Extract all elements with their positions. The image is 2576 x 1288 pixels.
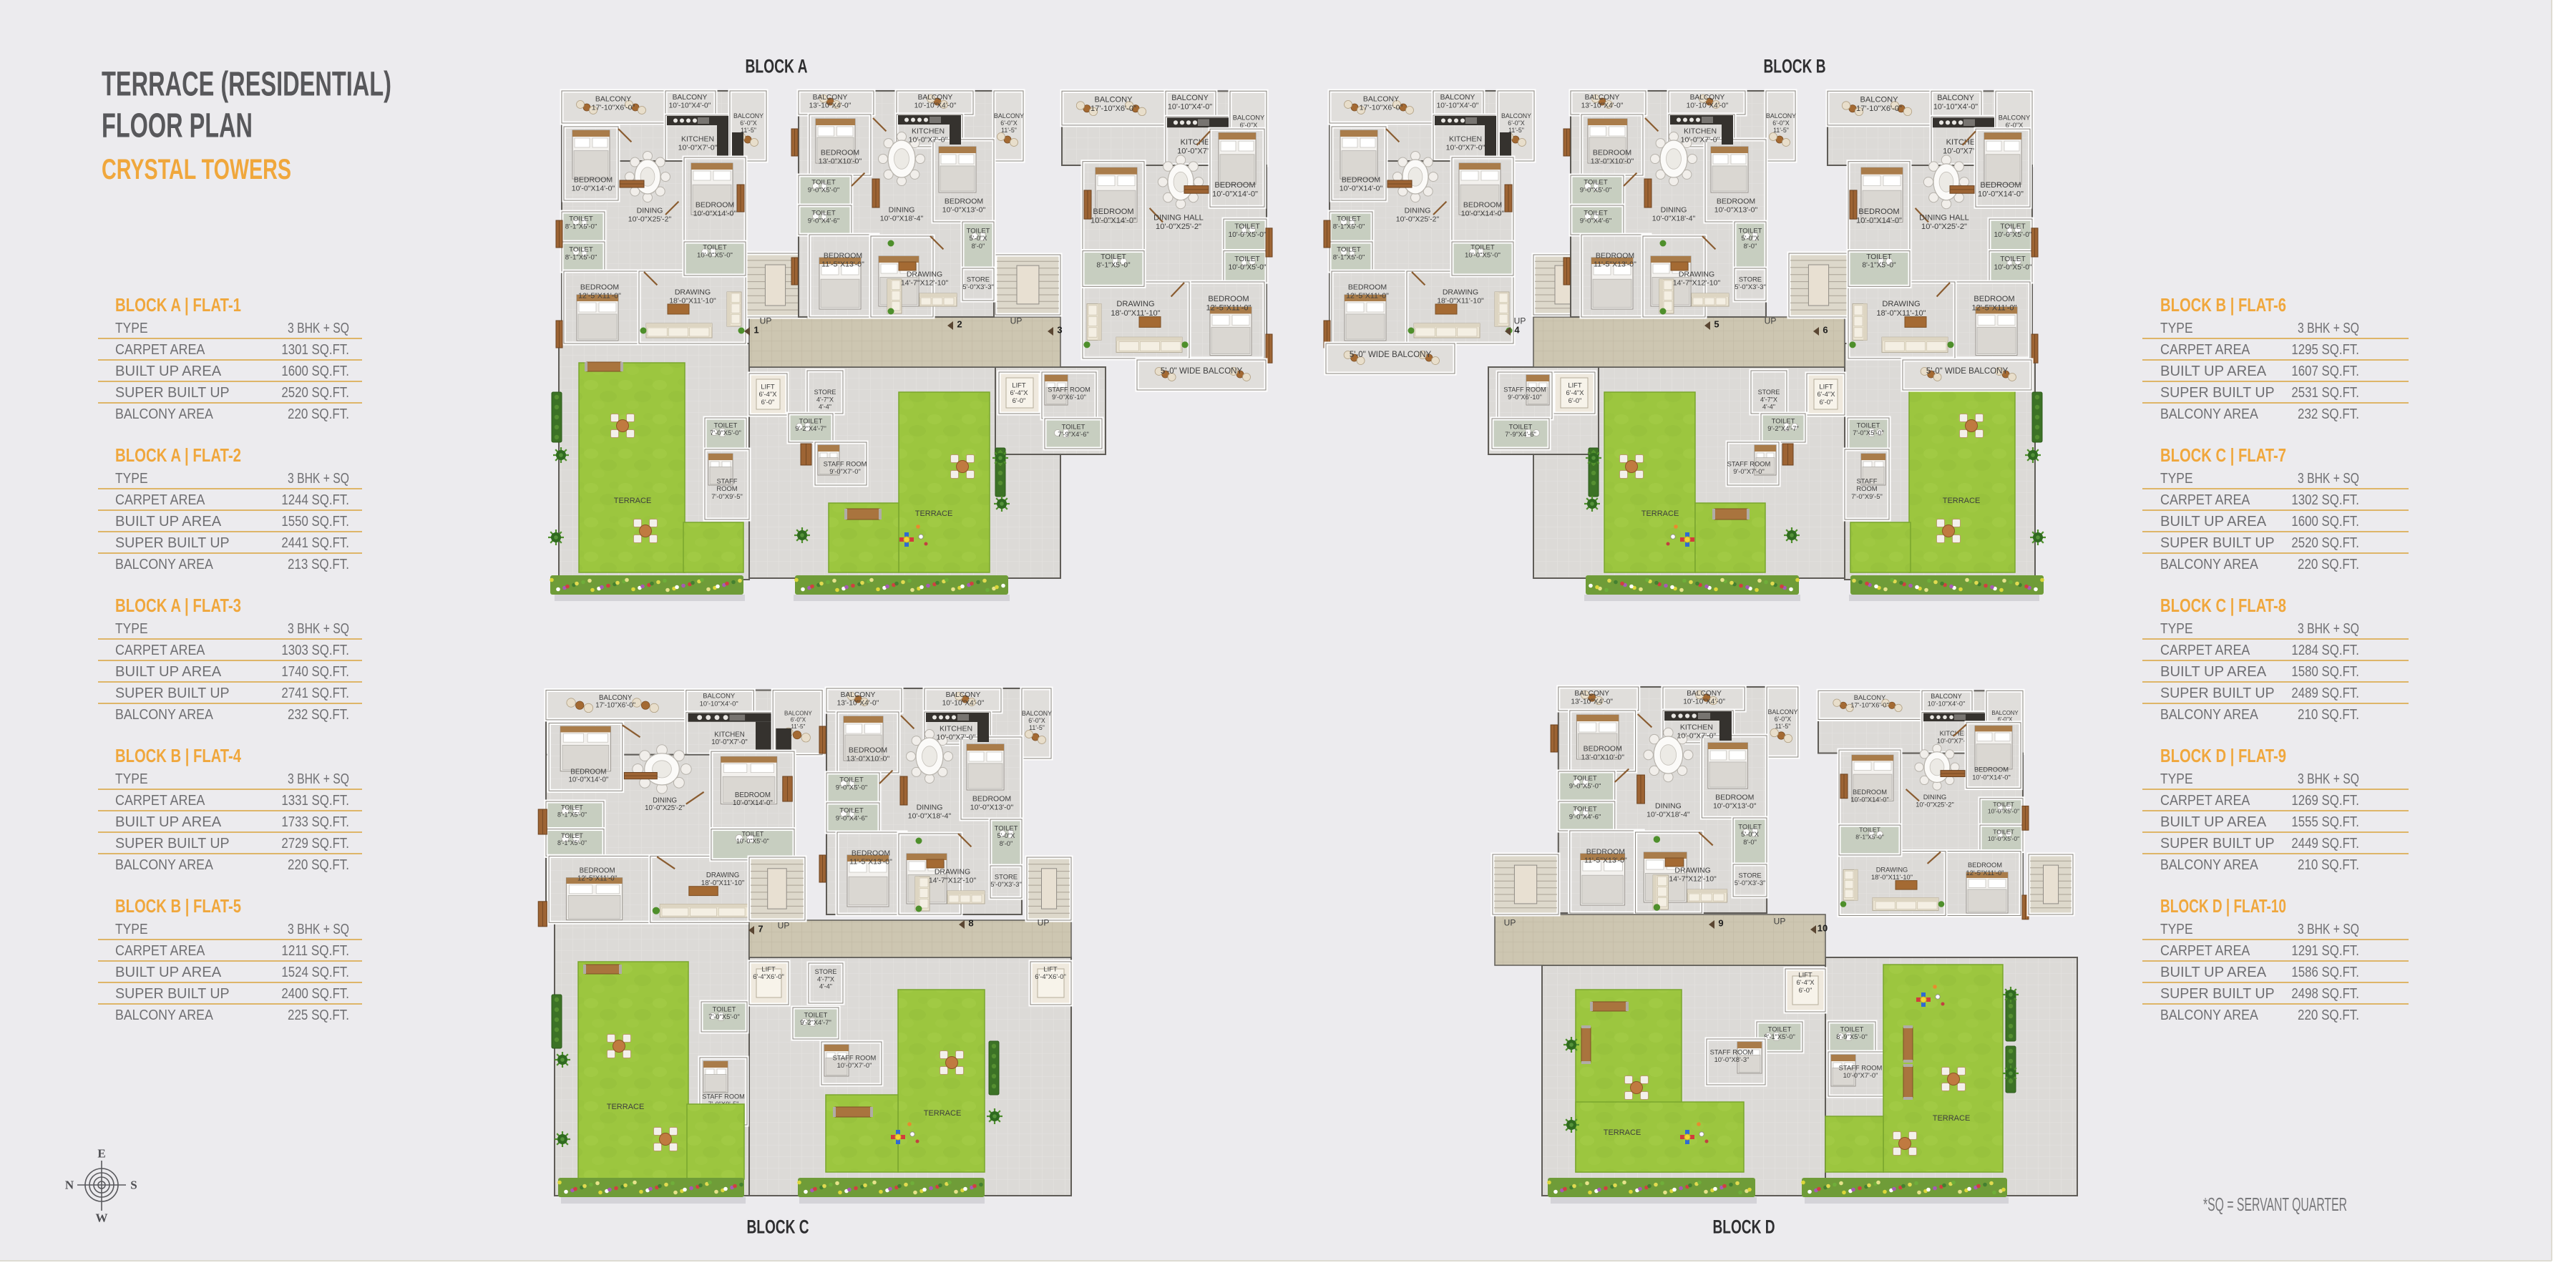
svg-text:10'-0"X14'-0": 10'-0"X14'-0" (693, 209, 737, 218)
svg-text:2441 SQ.FT.: 2441 SQ.FT. (281, 535, 349, 551)
svg-text:BEDROOM: BEDROOM (945, 197, 983, 205)
svg-text:TOILET: TOILET (561, 832, 583, 839)
svg-text:DRAWING: DRAWING (935, 867, 970, 876)
svg-text:2741 SQ.FT.: 2741 SQ.FT. (281, 686, 349, 701)
svg-text:2520 SQ.FT.: 2520 SQ.FT. (2291, 535, 2359, 551)
svg-text:BUILT UP AREA: BUILT UP AREA (2160, 664, 2267, 680)
svg-text:12'-5"X11'-0": 12'-5"X11'-0" (1206, 303, 1251, 312)
svg-text:BLOCK B | FLAT-5: BLOCK B | FLAT-5 (115, 895, 241, 917)
svg-text:SUPER BUILT UP: SUPER BUILT UP (115, 686, 230, 701)
svg-text:14'-7"X12'-10": 14'-7"X12'-10" (1669, 874, 1717, 883)
svg-text:5'-0" WIDE BALCONY: 5'-0" WIDE BALCONY (1161, 367, 1243, 376)
svg-text:1740 SQ.FT.: 1740 SQ.FT. (281, 664, 349, 680)
svg-text:18'-0"X11'-10": 18'-0"X11'-10" (669, 296, 716, 305)
svg-text:DRAWING: DRAWING (1443, 288, 1478, 296)
svg-text:232 SQ.FT.: 232 SQ.FT. (288, 707, 349, 723)
svg-text:BEDROOM: BEDROOM (1214, 181, 1255, 190)
svg-text:TOILET: TOILET (839, 776, 864, 784)
svg-text:BLOCK B | FLAT-4: BLOCK B | FLAT-4 (115, 745, 241, 766)
svg-text:8'-1"X5'-0": 8'-1"X5'-0" (565, 254, 597, 262)
svg-text:TOILET: TOILET (811, 179, 836, 187)
svg-text:10'-0"X18'-4": 10'-0"X18'-4" (880, 214, 924, 223)
svg-text:14'-7"X12'-10": 14'-7"X12'-10" (901, 278, 949, 287)
svg-text:213 SQ.FT.: 213 SQ.FT. (288, 557, 349, 572)
svg-text:6'-0"X: 6'-0"X (791, 717, 806, 723)
svg-text:BALCONY: BALCONY (1094, 96, 1133, 104)
svg-text:BEDROOM: BEDROOM (1715, 793, 1754, 801)
svg-text:BALCONY: BALCONY (1233, 114, 1264, 122)
svg-text:3 BHK + SQ: 3 BHK + SQ (2298, 922, 2359, 937)
svg-text:BALCONY AREA: BALCONY AREA (115, 1008, 213, 1023)
svg-text:6'-4"X: 6'-4"X (1818, 390, 1836, 398)
svg-text:12'-5"X11'-0": 12'-5"X11'-0" (1971, 303, 2016, 312)
svg-text:TOILET: TOILET (569, 246, 593, 254)
svg-text:TERRACE: TERRACE (924, 1109, 962, 1118)
svg-text:BEDROOM: BEDROOM (570, 769, 606, 776)
svg-text:BALCONY AREA: BALCONY AREA (2160, 707, 2258, 723)
svg-text:TOILET: TOILET (967, 227, 990, 235)
svg-text:11'-5"X13'-0": 11'-5"X13'-0" (1584, 856, 1627, 864)
svg-text:BALCONY: BALCONY (595, 94, 631, 103)
svg-text:1586 SQ.FT.: 1586 SQ.FT. (2291, 965, 2359, 980)
svg-text:ROOM: ROOM (716, 484, 737, 492)
svg-text:TOILET: TOILET (1768, 1025, 1792, 1033)
svg-text:8'-1"X5'-0": 8'-1"X5'-0" (557, 839, 587, 847)
svg-text:BEDROOM: BEDROOM (1093, 208, 1133, 216)
svg-text:TYPE: TYPE (115, 771, 148, 787)
svg-text:BLOCK D: BLOCK D (1713, 1216, 1775, 1238)
svg-text:17'-10"X6'-0": 17'-10"X6'-0" (1856, 104, 1902, 113)
svg-text:10'-10"X4'-0": 10'-10"X4'-0" (1687, 102, 1729, 110)
svg-text:6'-4"X: 6'-4"X (759, 390, 778, 398)
svg-text:10'-0"X7'-0": 10'-0"X7'-0" (1681, 135, 1720, 144)
svg-text:BALCONY: BALCONY (784, 711, 812, 717)
svg-text:17'-10"X6'-0": 17'-10"X6'-0" (1850, 702, 1889, 709)
svg-text:TOILET: TOILET (569, 215, 593, 223)
svg-text:KITCHEN: KITCHEN (681, 135, 714, 143)
svg-text:5'-0"X: 5'-0"X (970, 234, 988, 242)
svg-text:E: E (97, 1147, 105, 1161)
svg-text:11'-5": 11'-5" (1029, 724, 1045, 731)
svg-text:BALCONY: BALCONY (994, 112, 1024, 119)
svg-text:STORE: STORE (1739, 872, 1762, 879)
svg-text:CARPET AREA: CARPET AREA (2160, 943, 2250, 959)
svg-text:6'-0"X: 6'-0"X (740, 119, 757, 127)
svg-text:232 SQ.FT.: 232 SQ.FT. (2298, 406, 2359, 422)
svg-text:8'-1"X5'-0": 8'-1"X5'-0" (1096, 261, 1131, 269)
svg-text:TOILET: TOILET (811, 210, 836, 218)
svg-text:BALCONY: BALCONY (1766, 112, 1796, 119)
svg-text:BALCONY: BALCONY (733, 112, 763, 119)
svg-text:TERRACE: TERRACE (1604, 1128, 1641, 1137)
svg-text:TYPE: TYPE (115, 922, 148, 937)
svg-text:10'-0"X14'-0": 10'-0"X14'-0" (1972, 774, 2011, 781)
svg-text:10'-0"X13'-0": 10'-0"X13'-0" (942, 205, 986, 214)
svg-text:6'-4"X6'-0": 6'-4"X6'-0" (1035, 972, 1066, 980)
svg-text:3 BHK + SQ: 3 BHK + SQ (2298, 471, 2359, 487)
svg-text:BEDROOM: BEDROOM (1974, 295, 2014, 303)
svg-text:10'-0"X18'-4": 10'-0"X18'-4" (1646, 810, 1690, 819)
svg-text:BLOCK A | FLAT-2: BLOCK A | FLAT-2 (115, 444, 241, 466)
svg-text:BLOCK A: BLOCK A (746, 56, 808, 77)
svg-text:BUILT UP AREA: BUILT UP AREA (2160, 814, 2267, 830)
svg-text:TOILET: TOILET (839, 807, 864, 815)
svg-text:3 BHK + SQ: 3 BHK + SQ (2298, 321, 2359, 336)
svg-text:BLOCK A | FLAT-1: BLOCK A | FLAT-1 (115, 294, 241, 316)
svg-text:STAFF ROOM: STAFF ROOM (1503, 386, 1546, 393)
svg-text:7'-9"X4'-6": 7'-9"X4'-6" (1505, 430, 1536, 438)
svg-text:TOILET: TOILET (1509, 423, 1533, 431)
svg-text:10'-0"X7'-0": 10'-0"X7'-0" (1677, 731, 1717, 740)
svg-text:1269 SQ.FT.: 1269 SQ.FT. (2291, 793, 2359, 809)
svg-text:TOILET: TOILET (1859, 826, 1880, 834)
svg-text:10'-0"X14'-0": 10'-0"X14'-0" (1340, 184, 1383, 192)
svg-text:18'-0"X11'-10": 18'-0"X11'-10" (1871, 874, 1913, 881)
svg-text:11'-5": 11'-5" (1001, 127, 1017, 134)
svg-text:SUPER BUILT UP: SUPER BUILT UP (2160, 986, 2275, 1002)
svg-text:12'-5"X11'-0": 12'-5"X11'-0" (578, 291, 621, 300)
svg-text:10'-10"X4'-0": 10'-10"X4'-0" (669, 102, 711, 110)
svg-text:10'-0"X14'-0": 10'-0"X14'-0" (1091, 217, 1136, 225)
svg-text:10'-0"X14'-0": 10'-0"X14'-0" (1856, 217, 1902, 225)
svg-text:STAFF ROOM: STAFF ROOM (1048, 386, 1091, 393)
svg-text:BALCONY: BALCONY (1999, 114, 2030, 122)
svg-text:17'-10"X6'-0": 17'-10"X6'-0" (592, 103, 635, 112)
svg-text:14'-7"X12'-10": 14'-7"X12'-10" (929, 876, 977, 884)
svg-text:220 SQ.FT.: 220 SQ.FT. (288, 406, 349, 422)
svg-text:10'-0"X5'-0": 10'-0"X5'-0" (1994, 264, 2031, 272)
svg-text:TERRACE: TERRACE (1641, 509, 1679, 518)
svg-text:BALCONY: BALCONY (1991, 710, 2019, 716)
svg-text:1550 SQ.FT.: 1550 SQ.FT. (281, 514, 349, 530)
svg-text:LIFT: LIFT (761, 383, 775, 391)
svg-text:BALCONY: BALCONY (1931, 693, 1961, 700)
svg-text:CARPET AREA: CARPET AREA (2160, 492, 2250, 508)
svg-text:SUPER BUILT UP: SUPER BUILT UP (2160, 686, 2275, 701)
svg-text:1331 SQ.FT.: 1331 SQ.FT. (281, 793, 349, 809)
svg-text:CARPET AREA: CARPET AREA (115, 943, 205, 959)
svg-text:5'-0"X3'-3": 5'-0"X3'-3" (1735, 283, 1766, 291)
svg-text:6'-4"X: 6'-4"X (1566, 389, 1585, 396)
svg-text:7'-0"X9'-5": 7'-0"X9'-5" (1851, 492, 1883, 500)
svg-text:2520 SQ.FT.: 2520 SQ.FT. (281, 385, 349, 401)
svg-text:8'-0": 8'-0" (972, 242, 985, 250)
svg-text:9'-0"X7'-0": 9'-0"X7'-0" (829, 467, 861, 475)
svg-text:11'-5": 11'-5" (741, 127, 756, 134)
svg-text:8'-0": 8'-0" (1743, 838, 1757, 846)
svg-text:8'-1"X5'-0": 8'-1"X5'-0" (1333, 254, 1365, 262)
svg-text:BALCONY: BALCONY (1022, 710, 1052, 717)
svg-text:9'-0"X5'-0": 9'-0"X5'-0" (1569, 783, 1601, 791)
svg-text:TOILET: TOILET (1062, 423, 1085, 431)
svg-text:TOILET: TOILET (1573, 806, 1597, 814)
svg-text:1284 SQ.FT.: 1284 SQ.FT. (2291, 643, 2359, 658)
svg-text:BLOCK C: BLOCK C (747, 1216, 809, 1238)
svg-text:BLOCK C | FLAT-7: BLOCK C | FLAT-7 (2160, 444, 2286, 466)
svg-text:9'-0"X4'-6": 9'-0"X4'-6" (836, 815, 868, 823)
svg-text:12'-5"X11'-0": 12'-5"X11'-0" (1346, 291, 1389, 300)
svg-text:BALCONY AREA: BALCONY AREA (2160, 557, 2258, 572)
svg-text:UP: UP (1504, 918, 1516, 928)
svg-text:BALCONY AREA: BALCONY AREA (2160, 406, 2258, 422)
svg-text:2729 SQ.FT.: 2729 SQ.FT. (281, 836, 349, 852)
svg-text:10'-0"X14'-0": 10'-0"X14'-0" (1212, 190, 1258, 199)
svg-text:6'-0"X: 6'-0"X (1772, 119, 1790, 127)
svg-text:6: 6 (1823, 324, 1828, 335)
svg-text:UP: UP (1774, 917, 1786, 927)
svg-text:10'-0"X25'-2": 10'-0"X25'-2" (1916, 801, 1954, 809)
svg-text:KITCHEN: KITCHEN (1684, 127, 1717, 135)
svg-text:BALCONY: BALCONY (673, 94, 708, 102)
svg-text:STORE: STORE (967, 275, 990, 283)
svg-text:TOILET: TOILET (1866, 253, 1891, 261)
svg-text:5'-0" WIDE BALCONY: 5'-0" WIDE BALCONY (1350, 351, 1432, 359)
svg-text:CARPET AREA: CARPET AREA (2160, 342, 2250, 358)
svg-text:13'-10"X4'-0": 13'-10"X4'-0" (1581, 102, 1624, 110)
svg-text:9'-0"X5'-0": 9'-0"X5'-0" (836, 784, 868, 792)
svg-text:3 BHK + SQ: 3 BHK + SQ (288, 922, 349, 937)
svg-text:6'-0"X: 6'-0"X (1028, 717, 1045, 724)
svg-text:LIFT: LIFT (1043, 965, 1058, 973)
svg-text:BEDROOM: BEDROOM (1586, 847, 1625, 856)
svg-text:10'-0"X5'-0": 10'-0"X5'-0" (1465, 252, 1501, 260)
svg-text:10'-0"X13'-0": 10'-0"X13'-0" (1713, 801, 1757, 810)
svg-text:STORE: STORE (1739, 275, 1762, 283)
svg-text:TOILET: TOILET (713, 1005, 736, 1013)
svg-text:10'-0"X7'-0": 10'-0"X7'-0" (1446, 143, 1485, 152)
svg-text:10'-0"X5'-0": 10'-0"X5'-0" (1988, 835, 2019, 842)
svg-text:10'-0"X7'-0": 10'-0"X7'-0" (909, 135, 948, 144)
svg-text:KITCHEN: KITCHEN (1449, 135, 1482, 143)
svg-text:3 BHK + SQ: 3 BHK + SQ (2298, 771, 2359, 787)
svg-text:11'-5"X13'-0": 11'-5"X13'-0" (821, 260, 864, 268)
svg-text:1600 SQ.FT.: 1600 SQ.FT. (2291, 514, 2359, 530)
svg-text:BALCONY: BALCONY (1854, 694, 1885, 701)
svg-text:10'-0"X18'-4": 10'-0"X18'-4" (908, 811, 952, 820)
svg-text:13'-0"X10'-0": 13'-0"X10'-0" (819, 157, 862, 165)
svg-text:CRYSTAL TOWERS: CRYSTAL TOWERS (102, 154, 291, 185)
svg-text:6'-0": 6'-0" (1820, 398, 1833, 406)
svg-text:3 BHK + SQ: 3 BHK + SQ (288, 471, 349, 487)
svg-text:4'-7"X: 4'-7"X (1760, 396, 1777, 403)
svg-text:1244 SQ.FT.: 1244 SQ.FT. (281, 492, 349, 508)
svg-text:BEDROOM: BEDROOM (1584, 744, 1622, 753)
svg-text:9'-0"X6'-10": 9'-0"X6'-10" (1052, 394, 1086, 401)
svg-text:BALCONY: BALCONY (1440, 94, 1475, 102)
svg-text:BALCONY: BALCONY (1690, 94, 1725, 102)
svg-text:DRAWING: DRAWING (706, 872, 739, 879)
svg-text:BLOCK D | FLAT-10: BLOCK D | FLAT-10 (2160, 895, 2286, 917)
svg-text:STAFF ROOM: STAFF ROOM (702, 1093, 745, 1100)
svg-text:STORE: STORE (814, 389, 836, 396)
svg-text:BALCONY: BALCONY (1171, 94, 1209, 102)
svg-text:11'-5": 11'-5" (791, 723, 805, 730)
svg-text:BALCONY: BALCONY (841, 691, 876, 699)
svg-text:10'-0"X25'-2": 10'-0"X25'-2" (1396, 215, 1440, 223)
svg-text:2498 SQ.FT.: 2498 SQ.FT. (2291, 986, 2359, 1002)
svg-text:STAFF ROOM: STAFF ROOM (824, 460, 867, 468)
svg-text:STORE: STORE (1758, 389, 1780, 396)
svg-text:10'-10"X4'-0": 10'-10"X4'-0" (1683, 698, 1725, 706)
svg-text:6'-0"X: 6'-0"X (1775, 716, 1792, 723)
svg-text:TOILET: TOILET (1337, 215, 1361, 223)
svg-text:TOILET: TOILET (1101, 253, 1126, 261)
svg-text:6'-0": 6'-0" (1799, 986, 1813, 994)
svg-text:DINING: DINING (889, 205, 915, 214)
svg-text:BLOCK B | FLAT-6: BLOCK B | FLAT-6 (2160, 294, 2286, 316)
svg-text:220 SQ.FT.: 220 SQ.FT. (288, 857, 349, 873)
svg-text:1600 SQ.FT.: 1600 SQ.FT. (281, 364, 349, 379)
svg-text:13'-0"X10'-0": 13'-0"X10'-0" (1581, 753, 1624, 761)
svg-text:DINING: DINING (1661, 205, 1687, 214)
svg-text:9'-0"X6'-10": 9'-0"X6'-10" (1508, 394, 1542, 401)
svg-text:N: N (65, 1179, 74, 1192)
svg-text:10'-0"X5'-0": 10'-0"X5'-0" (1994, 231, 2031, 239)
svg-text:1295 SQ.FT.: 1295 SQ.FT. (2291, 342, 2359, 358)
svg-text:8'-9"X5'-0": 8'-9"X5'-0" (1836, 1033, 1868, 1040)
svg-text:9'-0"X4'-6": 9'-0"X4'-6" (808, 218, 840, 225)
svg-text:DINING HALL: DINING HALL (1153, 214, 1204, 223)
svg-text:TOILET: TOILET (2000, 255, 2025, 263)
svg-text:13'-10"X4'-0": 13'-10"X4'-0" (837, 700, 879, 708)
svg-text:BEDROOM: BEDROOM (1858, 208, 1899, 216)
svg-text:4'-7"X: 4'-7"X (816, 396, 834, 403)
svg-text:BALCONY: BALCONY (1767, 708, 1797, 716)
svg-text:STAFF ROOM: STAFF ROOM (1727, 460, 1771, 468)
svg-text:BEDROOM: BEDROOM (1342, 175, 1380, 184)
svg-text:BEDROOM: BEDROOM (1980, 181, 2021, 190)
svg-text:10'-0"X13'-0": 10'-0"X13'-0" (1714, 205, 1758, 214)
svg-text:STAFF: STAFF (1857, 477, 1878, 485)
svg-text:3 BHK + SQ: 3 BHK + SQ (288, 321, 349, 336)
svg-text:TYPE: TYPE (115, 321, 148, 336)
svg-text:TOILET: TOILET (714, 421, 738, 429)
svg-text:11'-5": 11'-5" (1508, 127, 1524, 134)
svg-text:TYPE: TYPE (2160, 621, 2193, 637)
svg-text:TOILET: TOILET (1840, 1025, 1864, 1033)
svg-text:SUPER BUILT UP: SUPER BUILT UP (2160, 836, 2275, 852)
svg-text:4'-4": 4'-4" (1762, 404, 1775, 411)
svg-text:KITCHEN: KITCHEN (912, 127, 945, 135)
svg-text:TYPE: TYPE (115, 471, 148, 487)
svg-text:DINING: DINING (1405, 206, 1431, 215)
svg-text:TYPE: TYPE (2160, 922, 2193, 937)
svg-text:6'-4"X: 6'-4"X (1797, 978, 1815, 986)
svg-text:LIFT: LIFT (1798, 971, 1813, 979)
svg-text:2489 SQ.FT.: 2489 SQ.FT. (2291, 686, 2359, 701)
svg-text:9'-0"X4'-6": 9'-0"X4'-6" (1569, 814, 1601, 821)
svg-text:BEDROOM: BEDROOM (696, 200, 734, 209)
svg-text:BLOCK C | FLAT-8: BLOCK C | FLAT-8 (2160, 595, 2286, 616)
svg-text:TOILET: TOILET (1337, 246, 1361, 254)
svg-text:BALCONY AREA: BALCONY AREA (115, 857, 213, 873)
svg-text:CARPET AREA: CARPET AREA (2160, 793, 2250, 809)
svg-text:225 SQ.FT.: 225 SQ.FT. (288, 1008, 349, 1023)
svg-text:BALCONY: BALCONY (703, 692, 736, 700)
svg-text:5'-0"X: 5'-0"X (1742, 234, 1760, 242)
svg-text:BEDROOM: BEDROOM (852, 849, 890, 857)
svg-text:8'-1"X5'-0": 8'-1"X5'-0" (1764, 1033, 1795, 1040)
svg-text:SUPER BUILT UP: SUPER BUILT UP (115, 535, 230, 551)
svg-text:220 SQ.FT.: 220 SQ.FT. (2298, 557, 2359, 572)
svg-text:5'-0"X3'-3": 5'-0"X3'-3" (962, 283, 994, 291)
svg-text:10'-0"X7'-0": 10'-0"X7'-0" (678, 143, 718, 152)
svg-text:BUILT UP AREA: BUILT UP AREA (115, 514, 222, 530)
svg-text:9'-0"X4'-6": 9'-0"X4'-6" (1580, 218, 1612, 225)
svg-text:BALCONY: BALCONY (1585, 94, 1620, 102)
svg-text:6'-0": 6'-0" (1013, 396, 1026, 404)
svg-text:BALCONY: BALCONY (1501, 112, 1531, 119)
svg-text:BEDROOM: BEDROOM (824, 251, 862, 260)
svg-text:BEDROOM: BEDROOM (580, 283, 619, 291)
svg-text:STORE: STORE (995, 873, 1018, 881)
svg-text:TOILET: TOILET (804, 1011, 828, 1019)
svg-text:9'-2"X4'-7": 9'-2"X4'-7" (795, 424, 826, 432)
svg-text:TOILET: TOILET (1234, 255, 1259, 263)
svg-text:10'-0"X5'-0": 10'-0"X5'-0" (736, 837, 769, 844)
svg-text:UP: UP (1010, 316, 1023, 326)
svg-text:10'-0"X14'-0": 10'-0"X14'-0" (1850, 796, 1889, 803)
svg-text:10'-0"X8'-3": 10'-0"X8'-3" (1714, 1055, 1750, 1063)
svg-text:DRAWING: DRAWING (1876, 867, 1908, 874)
svg-text:11'-5": 11'-5" (1775, 723, 1791, 730)
svg-text:*SQ = SERVANT QUARTER: *SQ = SERVANT QUARTER (2203, 1194, 2347, 1215)
svg-text:10'-0"X14'-0": 10'-0"X14'-0" (572, 184, 615, 192)
svg-text:18'-0"X11'-10": 18'-0"X11'-10" (1437, 296, 1484, 305)
svg-text:BLOCK D | FLAT-9: BLOCK D | FLAT-9 (2160, 745, 2286, 766)
svg-text:DRAWING: DRAWING (1882, 300, 1920, 308)
svg-text:1302 SQ.FT.: 1302 SQ.FT. (2291, 492, 2359, 508)
svg-text:10'-10"X4'-0": 10'-10"X4'-0" (1437, 102, 1479, 110)
svg-text:BUILT UP AREA: BUILT UP AREA (115, 664, 222, 680)
svg-text:8: 8 (968, 917, 973, 928)
svg-text:7'-9"X4'-6": 7'-9"X4'-6" (1058, 430, 1089, 438)
svg-text:UP: UP (760, 316, 772, 326)
svg-text:BUILT UP AREA: BUILT UP AREA (115, 364, 222, 379)
svg-text:UP: UP (1038, 918, 1050, 928)
svg-text:4'-4": 4'-4" (819, 983, 832, 990)
svg-text:3 BHK + SQ: 3 BHK + SQ (2298, 621, 2359, 637)
svg-text:3 BHK + SQ: 3 BHK + SQ (288, 621, 349, 637)
svg-text:BEDROOM: BEDROOM (1593, 148, 1631, 157)
svg-text:TOILET: TOILET (1470, 244, 1495, 252)
svg-text:BLOCK B: BLOCK B (1764, 56, 1826, 77)
svg-text:9'-0"X5'-0": 9'-0"X5'-0" (808, 187, 840, 195)
svg-text:6'-4"X6'-0": 6'-4"X6'-0" (753, 972, 784, 980)
svg-text:10'-10"X4'-0": 10'-10"X4'-0" (1928, 700, 1965, 707)
svg-text:BEDROOM: BEDROOM (1463, 200, 1502, 209)
svg-text:TOILET: TOILET (799, 417, 823, 425)
svg-text:10'-0"X25'-2": 10'-0"X25'-2" (645, 804, 685, 812)
svg-text:10'-10"X4'-0": 10'-10"X4'-0" (914, 102, 957, 110)
svg-text:10'-0"X14'-0": 10'-0"X14'-0" (733, 799, 773, 807)
svg-text:TERRACE: TERRACE (607, 1103, 645, 1111)
svg-text:11'-5": 11'-5" (1773, 127, 1789, 134)
svg-text:BUILT UP AREA: BUILT UP AREA (115, 965, 222, 980)
svg-text:DRAWING: DRAWING (675, 288, 711, 296)
svg-text:BALCONY: BALCONY (1937, 94, 1974, 102)
svg-text:10'-0"X5'-0": 10'-0"X5'-0" (1988, 808, 2019, 815)
svg-text:1580 SQ.FT.: 1580 SQ.FT. (2291, 664, 2359, 680)
svg-text:DINING: DINING (917, 803, 943, 811)
svg-text:1524 SQ.FT.: 1524 SQ.FT. (281, 965, 349, 980)
svg-text:6'-0"X: 6'-0"X (1508, 119, 1525, 127)
svg-text:5'-0"X3'-3": 5'-0"X3'-3" (1735, 879, 1766, 887)
svg-text:18'-0"X11'-10": 18'-0"X11'-10" (1876, 309, 1926, 318)
svg-text:2531 SQ.FT.: 2531 SQ.FT. (2291, 385, 2359, 401)
svg-text:BALCONY AREA: BALCONY AREA (2160, 1008, 2258, 1023)
svg-text:10'-10"X4'-0": 10'-10"X4'-0" (942, 700, 985, 708)
